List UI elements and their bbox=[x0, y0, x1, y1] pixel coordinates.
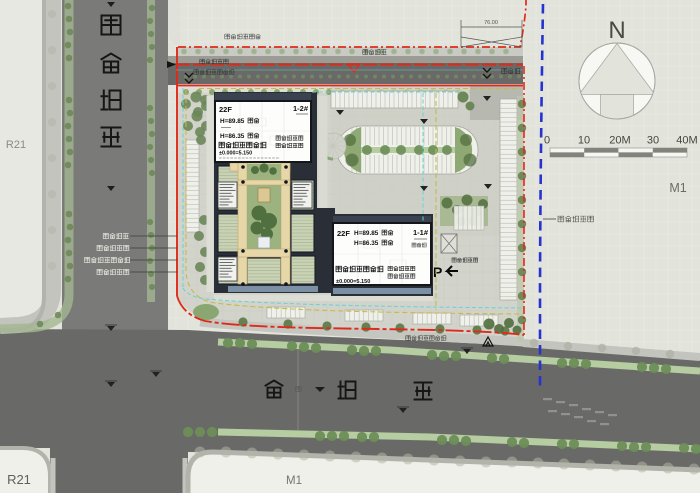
svg-text:H=89.85: H=89.85 bbox=[354, 230, 379, 237]
svg-text:H=86.35: H=86.35 bbox=[354, 240, 379, 247]
svg-text:20M: 20M bbox=[609, 135, 630, 147]
svg-text:R21: R21 bbox=[7, 472, 31, 487]
svg-text:22F: 22F bbox=[337, 229, 350, 238]
svg-text:±0.000=5.150: ±0.000=5.150 bbox=[219, 151, 252, 157]
svg-text:0: 0 bbox=[544, 135, 550, 147]
svg-text:1-1#: 1-1# bbox=[413, 228, 429, 237]
svg-text:R21: R21 bbox=[6, 139, 26, 151]
svg-text:H=86.35: H=86.35 bbox=[220, 133, 245, 140]
svg-text:N: N bbox=[608, 17, 625, 44]
svg-text:M1: M1 bbox=[669, 181, 686, 195]
svg-text:1-2#: 1-2# bbox=[293, 104, 309, 113]
svg-text:30: 30 bbox=[647, 135, 659, 147]
svg-text:10: 10 bbox=[578, 135, 590, 147]
svg-text:P: P bbox=[433, 264, 442, 280]
svg-text:76.00: 76.00 bbox=[484, 20, 498, 26]
svg-text:40M: 40M bbox=[676, 135, 697, 147]
svg-text:H=89.85: H=89.85 bbox=[220, 118, 245, 125]
svg-text:M1: M1 bbox=[286, 475, 302, 487]
svg-text:22F: 22F bbox=[219, 105, 232, 114]
svg-text:±0.000=5.150: ±0.000=5.150 bbox=[336, 279, 370, 285]
